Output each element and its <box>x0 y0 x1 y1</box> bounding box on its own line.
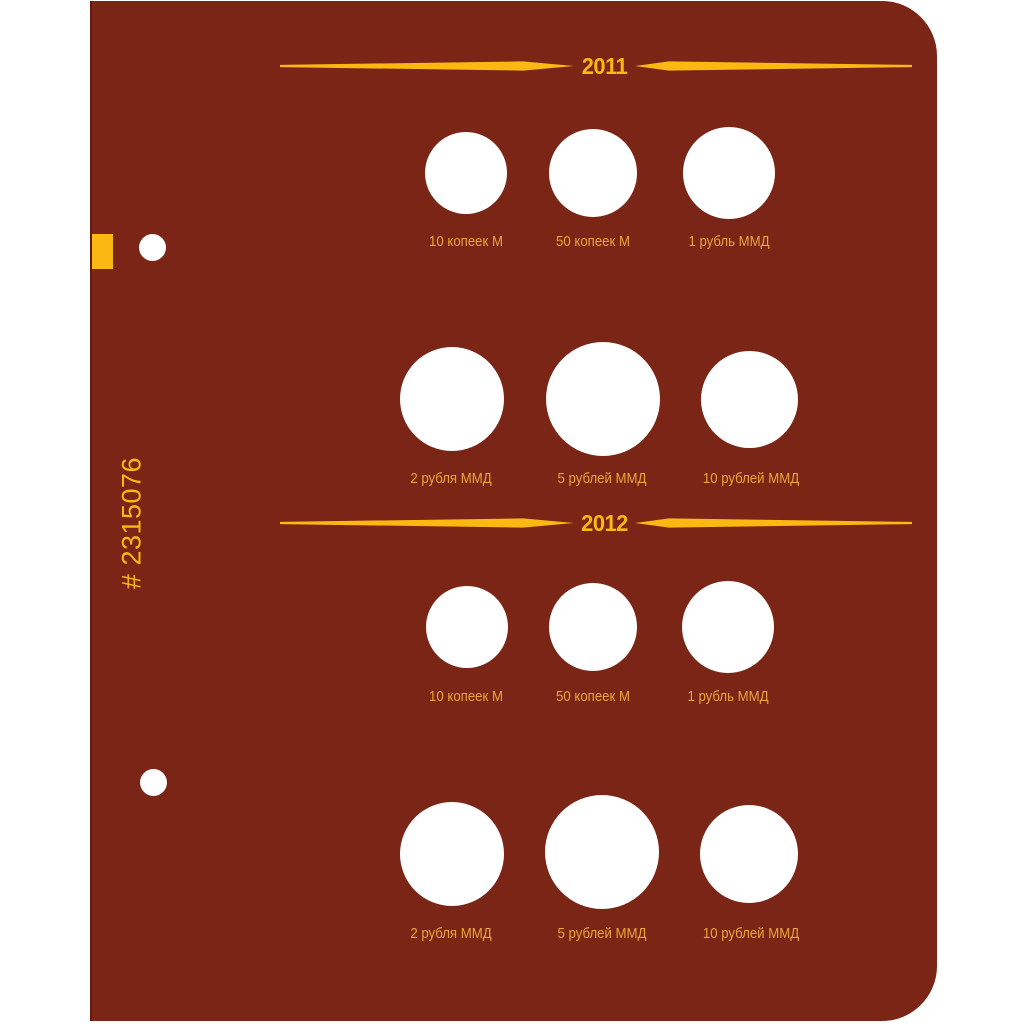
coin-slot-2012-2-rublya-mmd <box>400 802 504 906</box>
coin-slot-2012-1-rubl-mmd <box>682 581 774 673</box>
album-page: # 2315076 2011 10 копеек М 50 копеек М 1… <box>90 1 937 1021</box>
divider-arrow-right-pointing-icon <box>280 516 574 530</box>
divider-arrow-left-pointing-icon <box>635 59 912 73</box>
coin-slot-label: 10 рублей ММД <box>654 925 848 943</box>
coin-slot-2011-50-kopeek-m <box>549 129 637 217</box>
coin-slot-2011-2-rublya-mmd <box>400 347 504 451</box>
year-divider-2011: 2011 <box>280 56 912 76</box>
coin-slot-2012-50-kopeek-m <box>549 583 637 671</box>
coin-slot-label: 10 рублей ММД <box>654 470 848 488</box>
coin-slot-label: 1 рубль ММД <box>631 688 825 706</box>
coin-slot-2011-5-rubley-mmd <box>546 342 660 456</box>
coin-slot-2011-10-rubley-mmd <box>701 351 798 448</box>
coin-slot-2012-10-kopeek-m <box>426 586 508 668</box>
catalog-number: # 2315076 <box>117 457 148 589</box>
coin-slot-2011-1-rubl-mmd <box>683 127 775 219</box>
year-label-2012: 2012 <box>576 513 634 533</box>
album-sheet-image: # 2315076 2011 10 копеек М 50 копеек М 1… <box>0 0 1026 1026</box>
divider-arrow-right-pointing-icon <box>280 59 574 73</box>
spine-tab <box>92 234 113 269</box>
coin-slot-label: 1 рубль ММД <box>632 233 826 251</box>
divider-arrow-left-pointing-icon <box>635 516 912 530</box>
year-label-2011: 2011 <box>576 56 634 76</box>
coin-slot-2012-5-rubley-mmd <box>545 795 659 909</box>
coin-slot-2011-10-kopeek-m <box>425 132 507 214</box>
binder-hole-top <box>139 234 166 261</box>
binder-hole-bottom <box>140 769 167 796</box>
year-divider-2012: 2012 <box>280 513 912 533</box>
coin-slot-2012-10-rubley-mmd <box>700 805 798 903</box>
